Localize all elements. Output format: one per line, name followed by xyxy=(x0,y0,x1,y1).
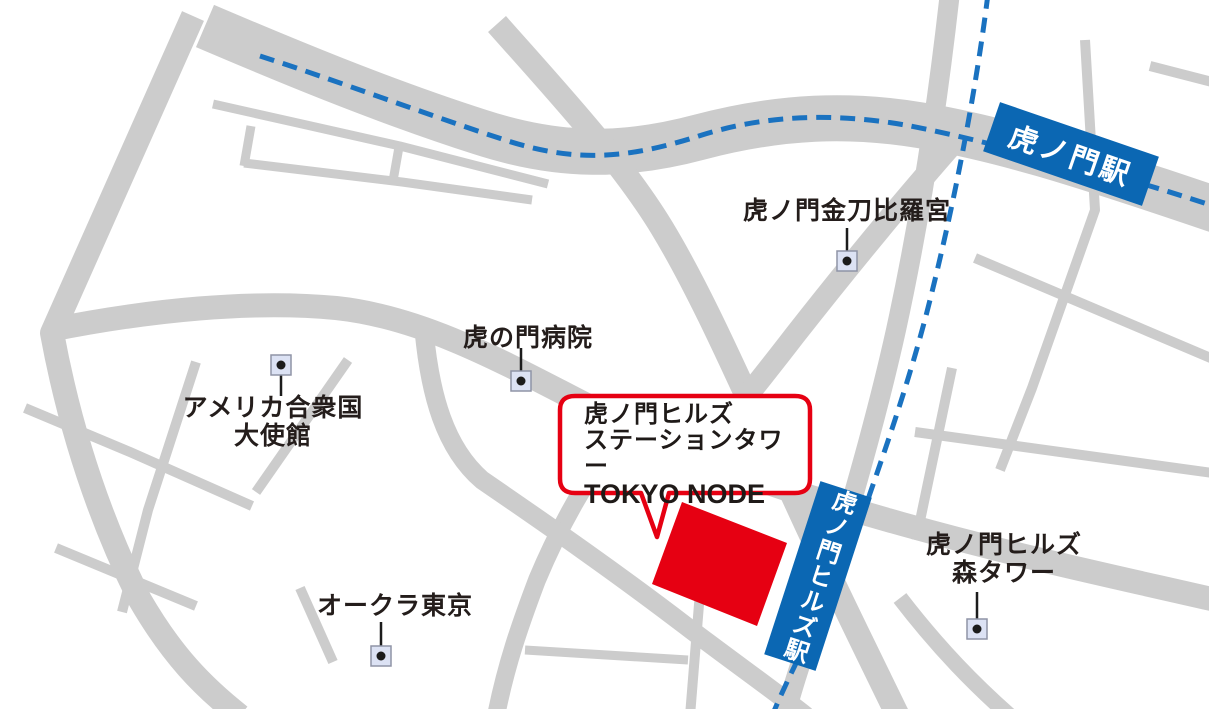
side-street xyxy=(1000,40,1095,470)
side-street xyxy=(915,432,1209,474)
side-street xyxy=(1150,66,1209,84)
label-line: 虎ノ門ヒルズ xyxy=(926,531,1082,559)
label-okura-tokyo: オークラ東京 xyxy=(317,592,473,620)
road-bottom-right xyxy=(900,598,1010,709)
road-network xyxy=(25,0,1209,709)
callout-line: ステーションタワー xyxy=(584,428,808,480)
place-marker-embassy xyxy=(271,355,291,396)
place-marker-mori xyxy=(967,592,987,639)
place-marker-okura xyxy=(371,622,391,666)
callout-line: TOKYO NODE xyxy=(584,480,808,509)
map-graphics xyxy=(0,0,1209,709)
side-street xyxy=(393,147,399,181)
label-line: アメリカ合衆国 xyxy=(183,394,364,422)
label-us-embassy: アメリカ合衆国 大使館 xyxy=(183,394,364,450)
callout-line: 虎ノ門ヒルズ xyxy=(584,402,808,428)
callout-tokyo-node: 虎ノ門ヒルズ ステーションタワー TOKYO NODE xyxy=(584,402,808,509)
side-street xyxy=(690,592,700,709)
side-street xyxy=(916,368,952,540)
label-mori-tower: 虎ノ門ヒルズ 森タワー xyxy=(926,531,1082,587)
side-street xyxy=(525,650,688,660)
label-line: 森タワー xyxy=(926,559,1082,587)
label-line: 大使館 xyxy=(183,422,364,450)
side-street xyxy=(975,258,1209,362)
label-toranomon-hospital: 虎の門病院 xyxy=(463,324,593,352)
road-main-top xyxy=(205,26,1209,212)
road-left-diagonal xyxy=(52,16,240,709)
label-kotohira-shrine: 虎ノ門金刀比羅宮 xyxy=(743,197,951,225)
toranomon-area-map: 虎ノ門駅 虎ノ門ヒルズ駅 虎ノ門金刀比羅宮 虎の門病院 アメリカ合衆国 大使館 … xyxy=(0,0,1209,709)
